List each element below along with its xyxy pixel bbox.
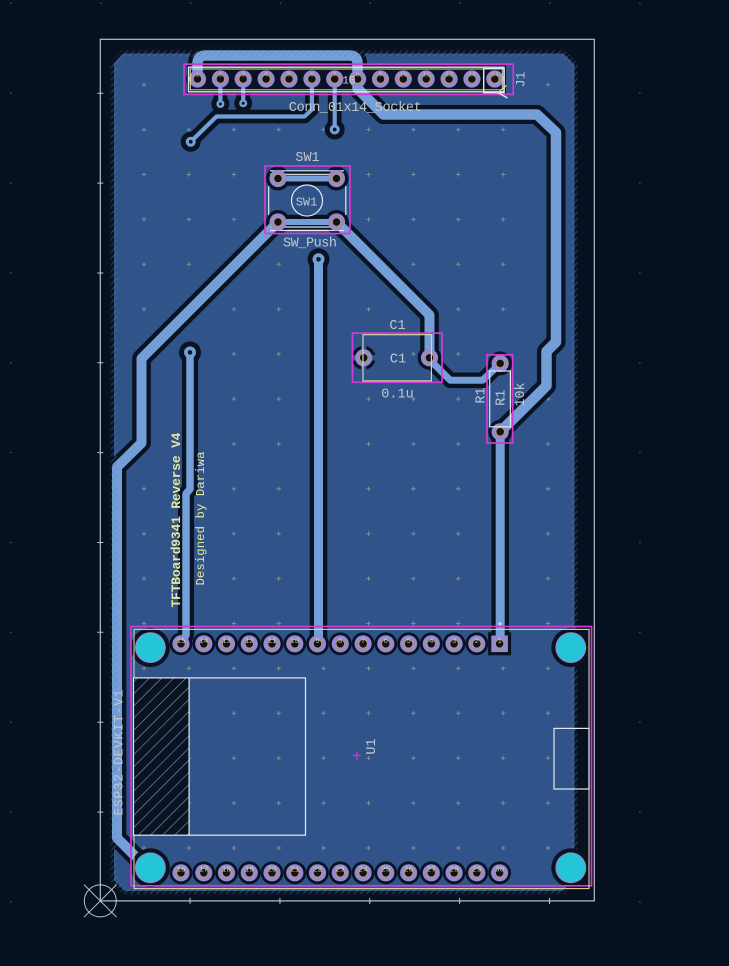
- svg-text:Designed by Dariwa: Designed by Dariwa: [194, 452, 208, 586]
- svg-text:20: 20: [267, 867, 277, 875]
- svg-text:3: 3: [452, 638, 457, 646]
- svg-text:7: 7: [333, 72, 337, 79]
- svg-text:0.1u: 0.1u: [381, 388, 413, 403]
- svg-text:13: 13: [468, 72, 476, 79]
- svg-text:7: 7: [361, 638, 366, 646]
- svg-text:17: 17: [199, 867, 208, 875]
- svg-text:6: 6: [384, 638, 389, 646]
- svg-text:U1: U1: [365, 738, 380, 754]
- svg-text:TFTBoard9341 Reverse V4: TFTBoard9341 Reverse V4: [169, 432, 184, 607]
- svg-text:15: 15: [176, 638, 186, 646]
- svg-text:27: 27: [427, 867, 436, 875]
- svg-text:9: 9: [379, 72, 383, 79]
- svg-text:25: 25: [381, 867, 391, 875]
- svg-text:29: 29: [472, 867, 481, 875]
- svg-text:10: 10: [342, 76, 355, 88]
- svg-text:11: 11: [422, 72, 430, 79]
- svg-text:5: 5: [406, 638, 411, 646]
- svg-text:1: 1: [497, 638, 502, 646]
- svg-text:24: 24: [359, 867, 369, 875]
- svg-text:R1: R1: [475, 387, 490, 403]
- svg-text:8: 8: [338, 638, 343, 646]
- svg-text:R1: R1: [494, 390, 509, 406]
- svg-text:2: 2: [475, 638, 480, 646]
- svg-text:8: 8: [356, 72, 360, 79]
- svg-text:10: 10: [290, 638, 300, 646]
- svg-text:C1: C1: [390, 353, 406, 368]
- svg-text:16: 16: [176, 867, 186, 875]
- svg-text:SW_Push: SW_Push: [283, 237, 337, 252]
- svg-text:4: 4: [429, 638, 434, 646]
- svg-text:Conn_01x14_Socket: Conn_01x14_Socket: [289, 101, 422, 116]
- svg-text:2: 2: [218, 72, 222, 79]
- svg-text:12: 12: [245, 638, 254, 646]
- svg-text:23: 23: [336, 867, 346, 875]
- svg-text:5: 5: [287, 72, 291, 79]
- svg-text:1: 1: [196, 72, 200, 79]
- svg-text:11: 11: [267, 638, 277, 646]
- svg-text:28: 28: [450, 867, 459, 875]
- svg-text:30: 30: [495, 867, 505, 875]
- svg-text:13: 13: [222, 638, 232, 646]
- svg-text:SW1: SW1: [296, 196, 318, 210]
- svg-text:9: 9: [315, 638, 320, 646]
- svg-text:4: 4: [264, 72, 268, 79]
- svg-text:14: 14: [491, 72, 499, 79]
- svg-text:10: 10: [399, 72, 407, 79]
- svg-text:C1: C1: [389, 319, 405, 334]
- svg-text:3: 3: [241, 72, 245, 79]
- svg-text:26: 26: [404, 867, 414, 875]
- svg-text:SW1: SW1: [295, 151, 319, 166]
- svg-text:14: 14: [199, 638, 209, 646]
- svg-text:12: 12: [445, 72, 453, 79]
- svg-text:18: 18: [222, 867, 231, 875]
- svg-text:22: 22: [313, 867, 322, 875]
- svg-text:21: 21: [290, 867, 300, 875]
- svg-text:10k: 10k: [514, 382, 529, 406]
- svg-text:J1: J1: [513, 71, 528, 87]
- svg-text:19: 19: [245, 867, 254, 875]
- svg-text:6: 6: [310, 72, 314, 79]
- svg-text:ESP32-DEVKIT-V1: ESP32-DEVKIT-V1: [111, 689, 126, 815]
